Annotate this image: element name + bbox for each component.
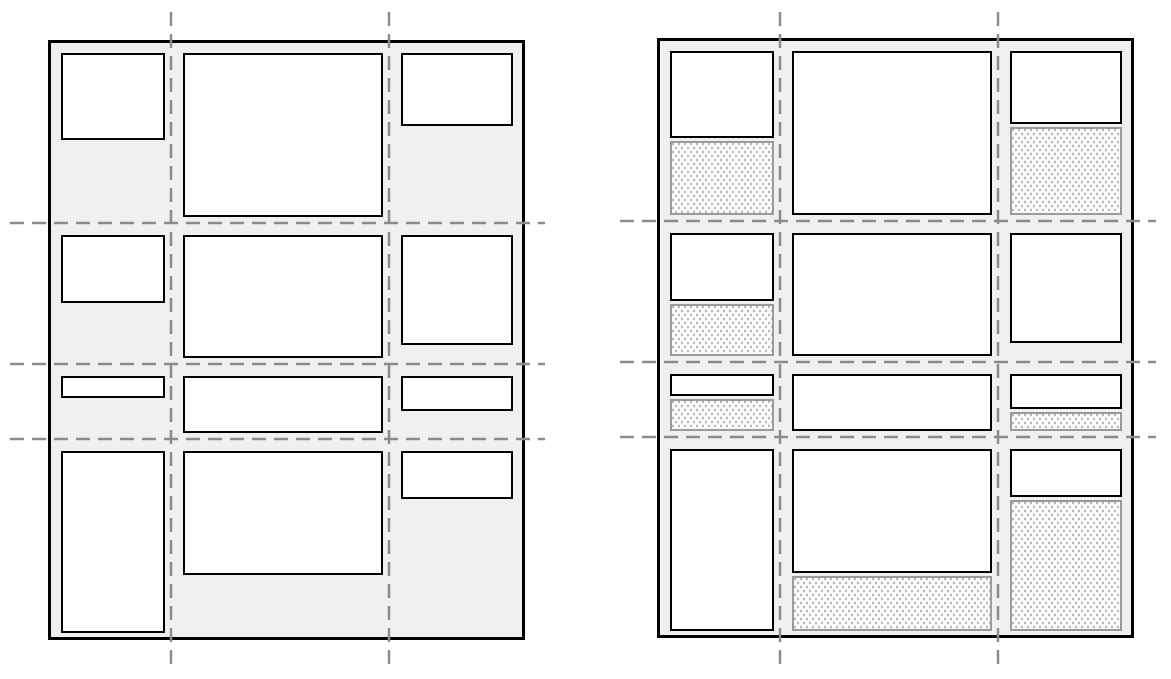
- grid-cell-r2c2: [183, 235, 383, 358]
- grid-cell-r2c1: [670, 233, 774, 356]
- grid-cell-r1c2: [183, 53, 383, 217]
- grid-cell-r1c3: [401, 53, 513, 217]
- grid-item-stretch-area-r3c3: [1010, 412, 1122, 431]
- diagram-canvas: [0, 0, 1171, 679]
- grid-cell-r4c3: [1010, 449, 1122, 631]
- grid-item-box-r3c3: [1010, 374, 1122, 409]
- grid-cell-r3c2: [792, 374, 992, 431]
- grid-cell-r4c2: [183, 451, 383, 633]
- grid-cell-r3c1: [670, 374, 774, 431]
- grid-cell-r2c1: [61, 235, 165, 358]
- grid-item-box-r3c2: [792, 374, 992, 431]
- grid-item-stretch-area-r4c2: [792, 576, 992, 631]
- grid-diagram-plain: [48, 40, 525, 640]
- grid-item-box-r4c2: [792, 449, 992, 573]
- grid-item-stretch-area-r4c3: [1010, 500, 1122, 631]
- grid-item-box-r3c2: [183, 376, 383, 433]
- grid-diagram-stretched: [657, 38, 1134, 638]
- grid-cell-r2c2: [792, 233, 992, 356]
- grid-item-box-r2c3: [401, 235, 513, 345]
- grid-item-box-r4c2: [183, 451, 383, 575]
- grid-item-box-r4c1: [670, 449, 774, 631]
- grid-item-box-r1c2: [183, 53, 383, 217]
- grid-item-box-r3c1: [670, 374, 774, 396]
- grid-item-box-r3c3: [401, 376, 513, 411]
- grid-item-stretch-area-r1c3: [1010, 127, 1122, 215]
- grid-item-box-r4c1: [61, 451, 165, 633]
- grid-item-box-r2c2: [183, 235, 383, 358]
- grid-cell-r1c1: [670, 51, 774, 215]
- grid-cell-r4c1: [670, 449, 774, 631]
- grid-cell-r3c3: [1010, 374, 1122, 431]
- grid-cell-r1c1: [61, 53, 165, 217]
- grid-cell-r3c1: [61, 376, 165, 433]
- grid-item-stretch-area-r3c1: [670, 399, 774, 431]
- grid-cell-r1c2: [792, 51, 992, 215]
- grid-item-box-r1c3: [401, 53, 513, 126]
- grid-cell-r2c3: [1010, 233, 1122, 356]
- grid-item-box-r4c3: [401, 451, 513, 499]
- grid-item-box-r1c3: [1010, 51, 1122, 124]
- grid-cell-r4c1: [61, 451, 165, 633]
- grid-cell-r4c2: [792, 449, 992, 631]
- grid-cell-r3c3: [401, 376, 513, 433]
- grid-cell-r4c3: [401, 451, 513, 633]
- grid-cell-r3c2: [183, 376, 383, 433]
- grid-item-box-r2c3: [1010, 233, 1122, 343]
- grid-item-box-r3c1: [61, 376, 165, 398]
- grid-item-box-r2c1: [670, 233, 774, 301]
- grid-item-box-r1c1: [670, 51, 774, 138]
- grid-cell-r2c3: [401, 235, 513, 358]
- grid-item-box-r4c3: [1010, 449, 1122, 497]
- grid-item-box-r2c2: [792, 233, 992, 356]
- grid-cell-r1c3: [1010, 51, 1122, 215]
- grid-item-box-r2c1: [61, 235, 165, 303]
- grid-item-stretch-area-r1c1: [670, 141, 774, 215]
- grid-item-stretch-area-r2c1: [670, 304, 774, 356]
- grid-item-box-r1c1: [61, 53, 165, 140]
- grid-item-box-r1c2: [792, 51, 992, 215]
